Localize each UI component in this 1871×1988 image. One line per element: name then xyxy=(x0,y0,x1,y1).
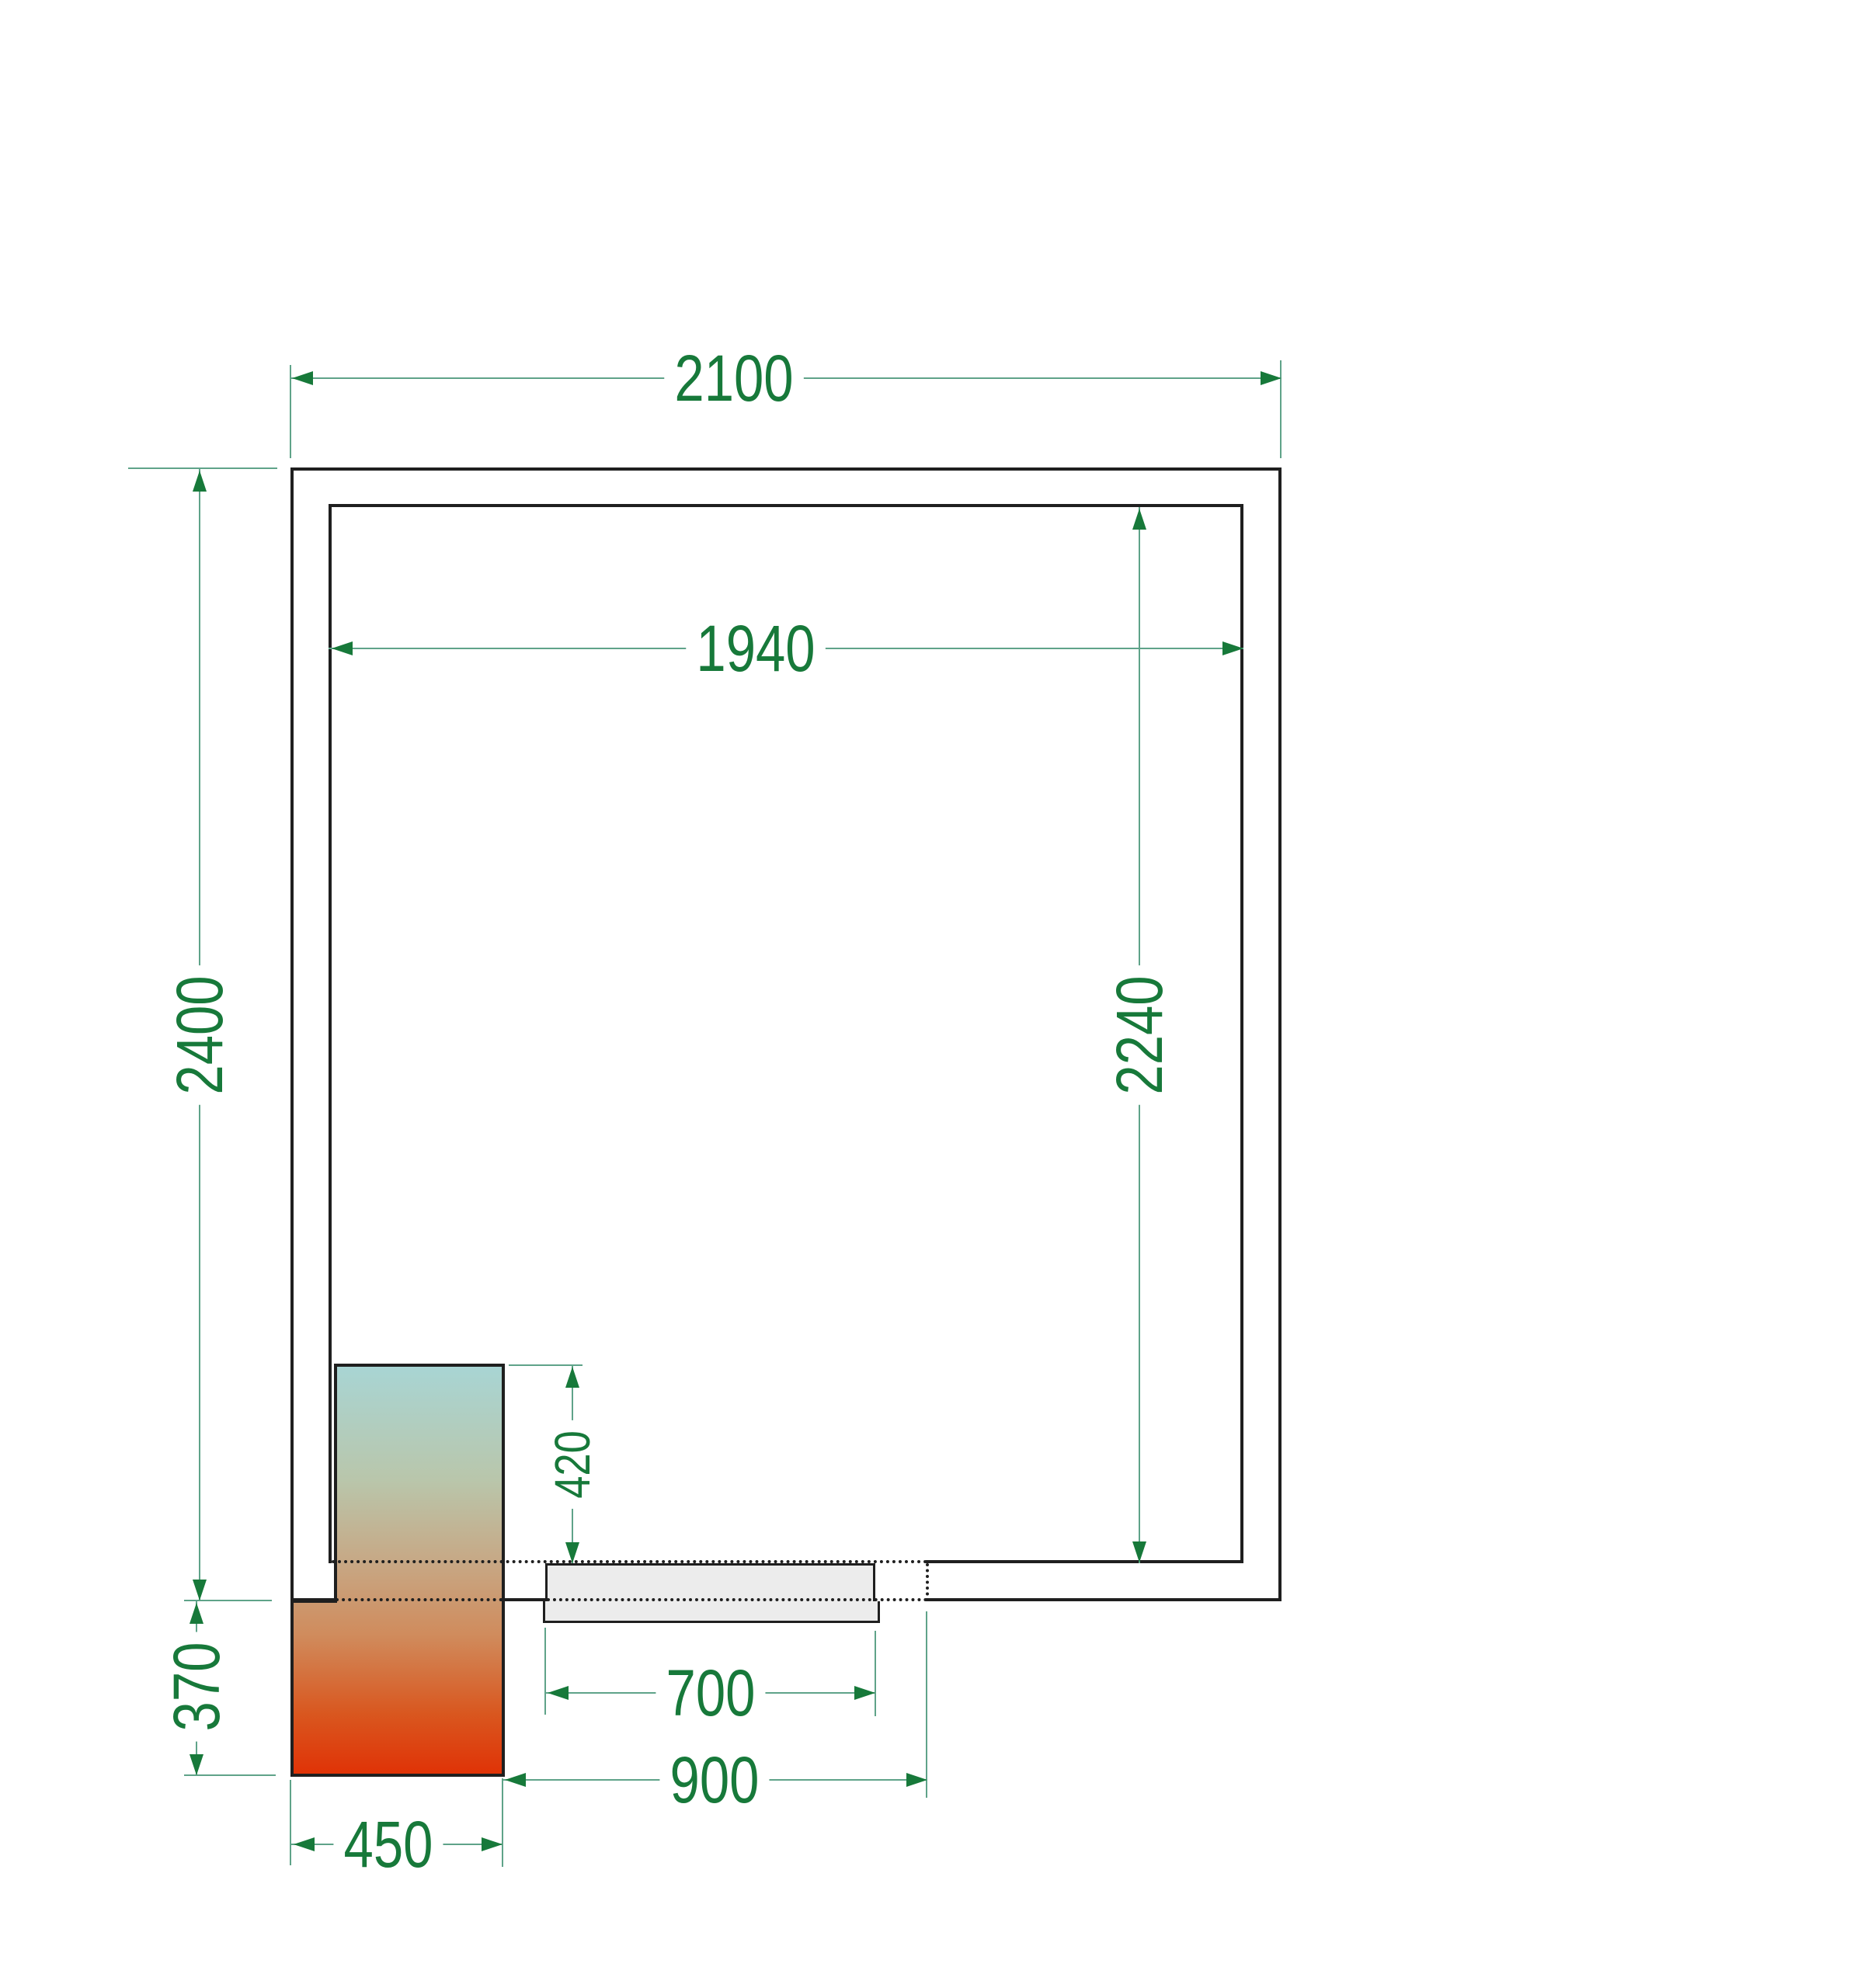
arrow-down-icon xyxy=(1132,1541,1146,1562)
arrow-down-icon xyxy=(190,1754,203,1775)
arrow-right-icon xyxy=(854,1686,875,1700)
outer-wall-bottom-edge-right xyxy=(926,1598,1282,1601)
arrow-right-icon xyxy=(482,1837,503,1851)
arrow-up-icon xyxy=(190,1603,203,1624)
arrow-left-icon xyxy=(548,1686,569,1700)
dimension-label: 2240 xyxy=(1104,965,1175,1104)
outer-wall-top-edge xyxy=(290,467,1282,471)
hidden-outer-wall-edge-under-unit xyxy=(336,1598,503,1601)
door-opening-right-edge xyxy=(926,1563,929,1601)
arrow-down-icon xyxy=(565,1542,579,1563)
inner-wall-right-edge xyxy=(1240,504,1243,1563)
extension-line xyxy=(926,1611,927,1798)
extension-line xyxy=(502,1783,503,1867)
arrow-left-icon xyxy=(294,1837,315,1851)
door-sill xyxy=(543,1601,880,1623)
dimension-label: 2100 xyxy=(664,342,803,414)
arrow-up-icon xyxy=(565,1367,579,1388)
extension-line xyxy=(544,1628,546,1715)
door-leaf xyxy=(545,1563,875,1601)
dimension-label: 900 xyxy=(659,1744,769,1816)
dimension-label: 2400 xyxy=(164,965,235,1104)
arrow-left-icon xyxy=(332,641,353,655)
arrow-down-icon xyxy=(193,1580,207,1600)
outer-wall-left-edge xyxy=(290,467,294,1601)
arrow-up-icon xyxy=(1132,509,1146,530)
extension-line xyxy=(290,365,291,458)
dimension-label: 700 xyxy=(656,1657,765,1729)
arrow-left-icon xyxy=(505,1773,526,1787)
dimension-label: 420 xyxy=(544,1420,600,1509)
outer-wall-bottom-edge-middle xyxy=(501,1598,548,1601)
outer-wall-right-edge xyxy=(1278,467,1282,1601)
inner-wall-top-edge xyxy=(329,504,1243,507)
extension-line xyxy=(290,1780,291,1865)
inner-wall-left-edge xyxy=(329,504,332,1563)
arrow-up-icon xyxy=(193,471,207,492)
dimension-label: 1940 xyxy=(686,613,825,684)
outer-wall-bottom-edge-left xyxy=(290,1598,337,1601)
cooling-unit-outline xyxy=(292,1365,503,1775)
floor-plan-canvas: 2100 1940 2400 2240 420 370 xyxy=(0,0,1871,1988)
arrow-right-icon xyxy=(1222,641,1243,655)
cooling-unit xyxy=(290,1362,506,1778)
arrow-right-icon xyxy=(906,1773,927,1787)
arrow-right-icon xyxy=(1261,371,1282,385)
extension-line xyxy=(128,467,277,469)
extension-line xyxy=(875,1631,876,1716)
dimension-label: 450 xyxy=(333,1809,443,1880)
inner-wall-bottom-edge-right xyxy=(926,1560,1243,1563)
dimension-label: 370 xyxy=(161,1632,232,1741)
hidden-outer-wall-edge-under-door xyxy=(547,1598,927,1601)
arrow-left-icon xyxy=(292,371,313,385)
